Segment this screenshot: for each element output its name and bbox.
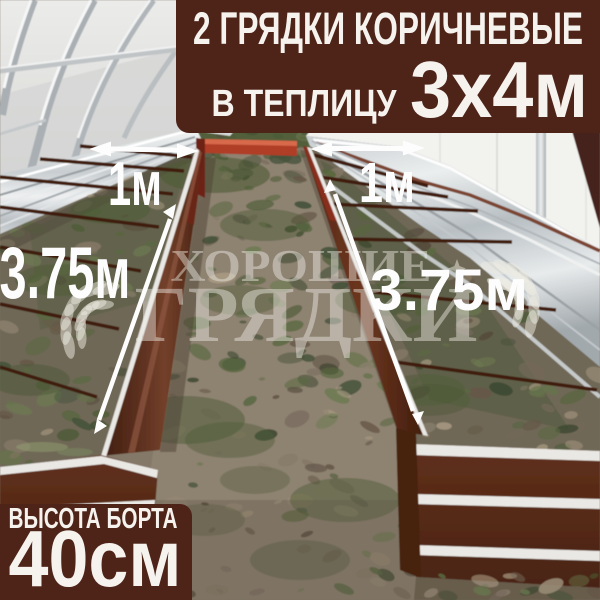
svg-text:1м: 1м [359,151,415,215]
svg-text:3.75м: 3.75м [370,258,528,323]
svg-text:40см: 40см [9,514,182,600]
svg-text:В ТЕПЛИЦУ: В ТЕПЛИЦУ [212,83,397,125]
svg-text:3.75м: 3.75м [0,233,131,314]
svg-text:3х4м: 3х4м [410,45,588,134]
svg-text:1м: 1м [108,150,162,219]
